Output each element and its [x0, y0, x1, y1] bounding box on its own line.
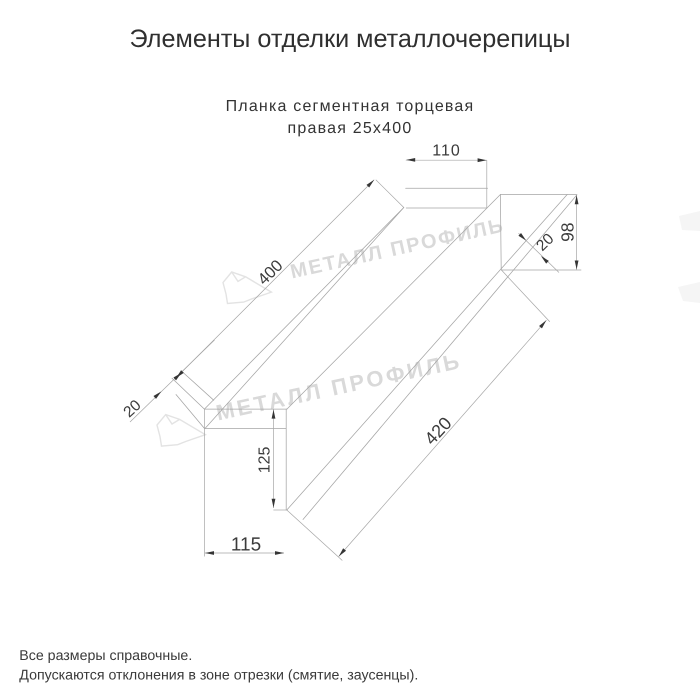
svg-text:Планка сегментная торцевая: Планка сегментная торцевая	[226, 98, 475, 115]
svg-text:98: 98	[558, 222, 578, 241]
svg-text:125: 125	[257, 446, 274, 473]
svg-text:Допускаются отклонения в зоне: Допускаются отклонения в зоне отрезки (с…	[19, 667, 418, 683]
svg-text:110: 110	[432, 143, 461, 160]
svg-text:Элементы отделки металлочерепи: Элементы отделки металлочерепицы	[130, 25, 571, 53]
svg-text:Все размеры справочные.: Все размеры справочные.	[19, 648, 192, 664]
svg-text:115: 115	[231, 534, 261, 555]
svg-text:правая 25х400: правая 25х400	[288, 120, 413, 137]
